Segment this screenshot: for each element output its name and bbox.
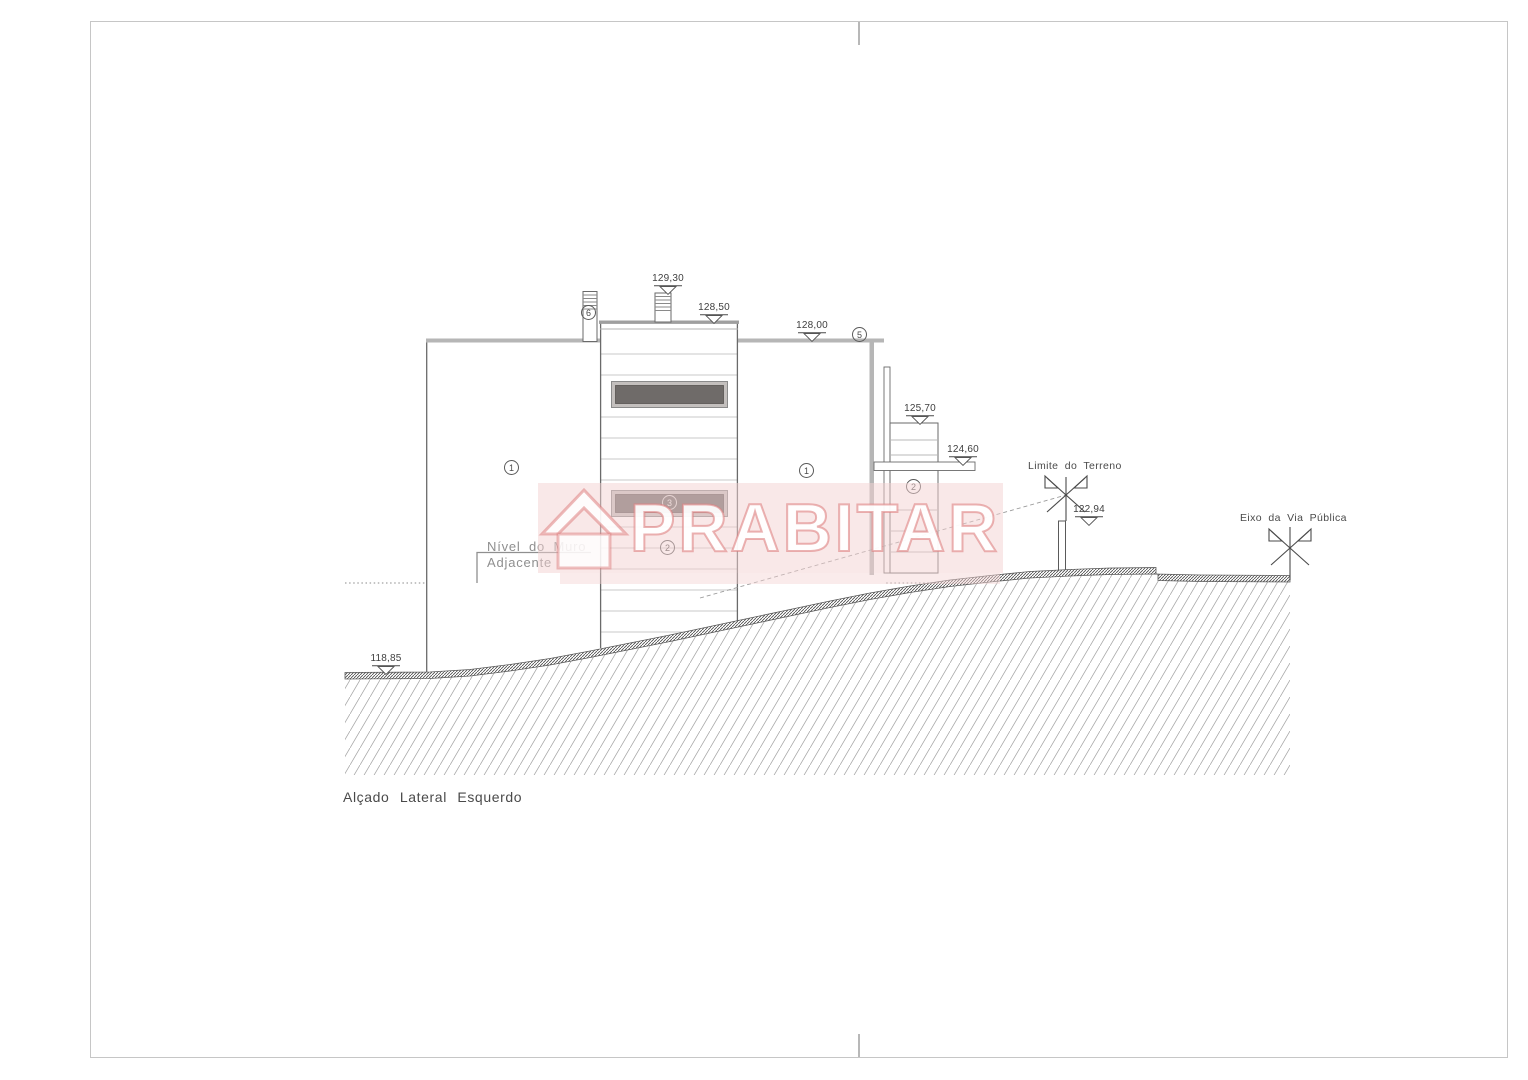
callout-3-window: 3 xyxy=(662,495,677,510)
level-marker-annex-top: 125,70 xyxy=(888,404,952,426)
level-marker-ground-left: 118,85 xyxy=(354,654,418,676)
sheet: 129,30 128,50 128,00 125,70 124,60 122,9… xyxy=(0,0,1528,1080)
level-value: 128,50 xyxy=(698,303,730,314)
callout-6-chimney: 6 xyxy=(581,305,596,320)
level-arrow-icon xyxy=(697,314,731,325)
level-value: 128,00 xyxy=(796,321,828,332)
adjacent-wall-label-line1: Nível do Muro xyxy=(487,539,586,554)
level-arrow-icon xyxy=(946,456,980,467)
central-tower xyxy=(599,321,739,653)
drawing-title: Alçado Lateral Esquerdo xyxy=(343,789,522,805)
level-marker-main-roof: 128,00 xyxy=(780,321,844,343)
left-building xyxy=(426,339,601,677)
level-value: 118,85 xyxy=(370,654,401,665)
callout-1-right-wall: 1 xyxy=(799,463,814,478)
chimney-middle xyxy=(655,293,671,322)
level-arrow-icon xyxy=(903,415,937,426)
terrain-limit-label: Limite do Terreno xyxy=(1028,460,1122,472)
level-marker-slab: 124,60 xyxy=(931,445,995,467)
level-marker-terrain-limit: 122,94 xyxy=(1057,505,1121,527)
callout-5-roof: 5 xyxy=(852,327,867,342)
level-arrow-icon xyxy=(651,285,685,296)
level-value: 122,94 xyxy=(1073,505,1105,516)
level-arrow-icon xyxy=(795,332,829,343)
level-arrow-icon xyxy=(1072,516,1106,527)
road-axis-label: Eixo da Via Pública xyxy=(1240,512,1347,524)
annex xyxy=(874,367,975,573)
elevation-drawing xyxy=(0,0,1528,1080)
road-axis-benchmark-icon xyxy=(1269,527,1311,580)
adjacent-wall-label-line2: Adjacente xyxy=(487,555,552,570)
window-band-upper xyxy=(612,382,728,408)
level-marker-tower-parapet: 128,50 xyxy=(682,303,746,325)
callout-1-left-wall: 1 xyxy=(504,460,519,475)
level-value: 125,70 xyxy=(904,404,936,415)
level-value: 129,30 xyxy=(652,274,684,285)
callout-2-tower: 2 xyxy=(660,540,675,555)
level-marker-chimney-top: 129,30 xyxy=(636,274,700,296)
callout-2-annex: 2 xyxy=(906,479,921,494)
level-value: 124,60 xyxy=(947,445,979,456)
terrain-limit-post xyxy=(1059,521,1066,573)
level-arrow-icon xyxy=(369,665,403,676)
